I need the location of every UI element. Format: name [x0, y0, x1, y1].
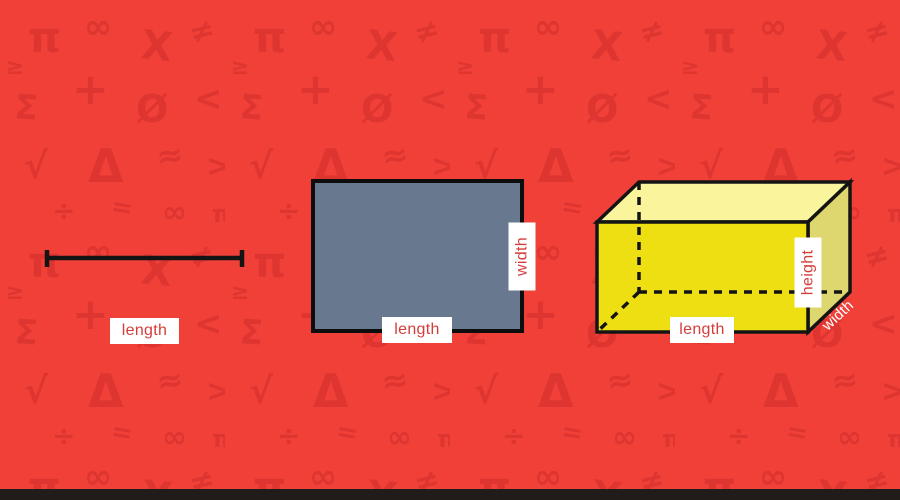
- diagram-canvas: π∞X≠Σ+Ø<√Δ≈>÷=∞π≥ length length w: [0, 0, 900, 500]
- prism-height-label: height: [795, 238, 822, 308]
- rectangle-width-label: width: [509, 223, 536, 291]
- prism-length-label: length: [670, 317, 734, 343]
- prism-front-face: [597, 222, 808, 332]
- line-segment: [47, 250, 242, 267]
- rectangle-shape: [313, 181, 522, 331]
- line-length-label: length: [110, 318, 179, 344]
- shapes-layer: [0, 0, 900, 500]
- bottom-bar: [0, 489, 900, 500]
- rectangle-length-label: length: [382, 317, 452, 343]
